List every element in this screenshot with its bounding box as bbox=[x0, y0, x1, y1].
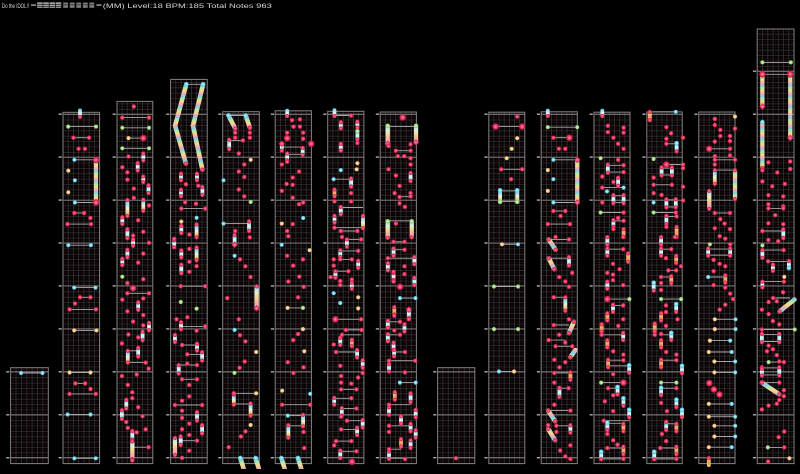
svg-text:Do the IDOL!!: Do the IDOL!! bbox=[2, 3, 29, 10]
svg-text:(MM) Level:18 BPM:185 Total No: (MM) Level:18 BPM:185 Total Notes 963 bbox=[103, 3, 272, 10]
